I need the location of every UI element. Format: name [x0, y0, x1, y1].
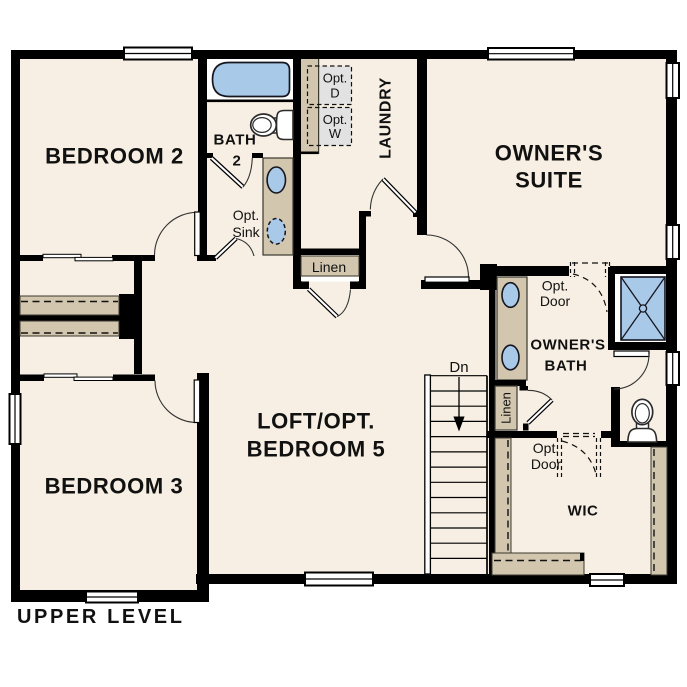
svg-text:Linen: Linen	[312, 259, 346, 275]
svg-text:UPPER LEVEL: UPPER LEVEL	[17, 606, 185, 628]
svg-text:WIC: WIC	[568, 503, 599, 520]
svg-text:BEDROOM 5: BEDROOM 5	[247, 437, 386, 462]
svg-text:BEDROOM 3: BEDROOM 3	[45, 474, 184, 499]
svg-text:Opt.: Opt.	[233, 207, 259, 223]
svg-text:LOFT/OPT.: LOFT/OPT.	[257, 409, 375, 434]
svg-text:BEDROOM 2: BEDROOM 2	[45, 144, 184, 169]
svg-text:Dn: Dn	[449, 359, 468, 376]
svg-text:W: W	[329, 126, 342, 141]
svg-text:Door: Door	[531, 456, 562, 472]
svg-text:2: 2	[233, 153, 242, 170]
svg-text:OWNER'S: OWNER'S	[495, 141, 603, 166]
svg-text:Opt.: Opt.	[323, 112, 348, 127]
svg-text:BATH: BATH	[545, 358, 588, 375]
svg-text:BATH: BATH	[214, 132, 257, 149]
svg-text:D: D	[330, 86, 339, 101]
svg-text:Linen: Linen	[499, 392, 514, 424]
svg-text:Sink: Sink	[232, 224, 260, 240]
svg-text:SUITE: SUITE	[515, 168, 583, 193]
svg-text:Opt.: Opt.	[542, 278, 568, 294]
svg-text:Door: Door	[540, 293, 571, 309]
svg-text:OWNER'S: OWNER'S	[530, 337, 605, 354]
svg-text:LAUNDRY: LAUNDRY	[378, 77, 395, 159]
svg-text:Opt.: Opt.	[533, 440, 559, 456]
svg-text:Opt.: Opt.	[323, 71, 348, 86]
